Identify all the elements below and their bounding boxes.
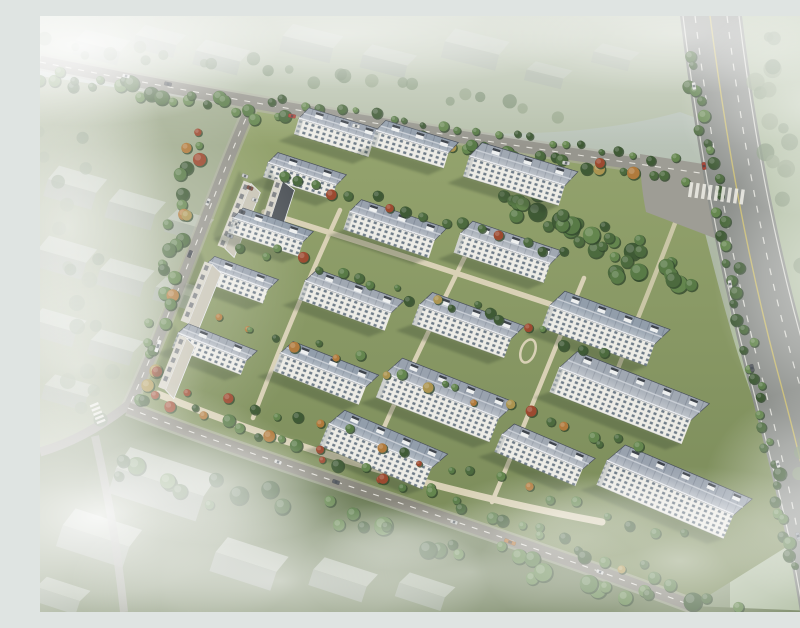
tree-highlight [557, 155, 562, 160]
tree-highlight [629, 168, 635, 174]
tree-highlight [622, 256, 628, 262]
tree-highlight [667, 274, 674, 281]
tree-highlight [427, 487, 432, 492]
tree-highlight [443, 220, 447, 224]
tree-highlight [560, 422, 564, 426]
tree-highlight [559, 341, 564, 346]
tree-highlight [525, 324, 529, 328]
tree-highlight [399, 484, 403, 488]
tree-highlight [443, 381, 446, 384]
tree-highlight [466, 467, 470, 471]
tree-highlight [650, 172, 654, 176]
tree-highlight [507, 400, 512, 405]
tree-highlight [417, 461, 420, 464]
tree-highlight [605, 234, 610, 239]
tree-highlight [601, 222, 606, 227]
tree-highlight [294, 177, 299, 182]
tree-highlight [357, 351, 362, 356]
tree-highlight [327, 190, 332, 195]
tree-highlight [401, 207, 406, 212]
tree-highlight [400, 448, 404, 452]
tree-highlight [611, 253, 616, 258]
tree-highlight [379, 444, 384, 449]
tree-highlight [527, 407, 532, 412]
tree-highlight [560, 248, 564, 252]
tree-highlight [575, 237, 580, 242]
tree-highlight [558, 210, 564, 216]
tree-highlight [511, 210, 518, 217]
tree-highlight [635, 442, 640, 447]
aerial-rendering-svg [40, 16, 800, 612]
tree-highlight [395, 285, 398, 288]
tree-highlight [339, 269, 344, 274]
tree-highlight [495, 231, 500, 236]
aerial-render-figure [40, 16, 800, 612]
tree-highlight [585, 228, 593, 236]
tree-highlight [599, 150, 602, 153]
tree-highlight [333, 355, 337, 359]
tree-highlight [497, 472, 501, 476]
tree-highlight [316, 340, 319, 343]
tree-highlight [599, 242, 604, 247]
car-glass [565, 162, 568, 165]
tree-highlight [274, 414, 278, 418]
tree-highlight [294, 413, 299, 418]
tree-highlight [647, 157, 652, 162]
tree-highlight [495, 316, 500, 321]
tree-highlight [424, 383, 429, 388]
tree-highlight [475, 302, 478, 305]
tree-highlight [367, 282, 371, 286]
tree-highlight [312, 181, 316, 185]
tree-highlight [590, 433, 595, 438]
tree-highlight [486, 309, 491, 314]
tree-highlight [660, 260, 667, 267]
tree-highlight [379, 474, 384, 479]
tree-highlight [672, 154, 676, 158]
fog-wisp [310, 501, 490, 571]
tree-highlight [712, 208, 717, 213]
tree-highlight [544, 222, 549, 227]
tree-highlight [597, 441, 600, 444]
tree-highlight [386, 205, 390, 209]
tree-highlight [615, 147, 620, 152]
tree-highlight [635, 236, 640, 241]
tree-highlight [434, 296, 438, 300]
tree-highlight [452, 384, 455, 387]
tree-highlight [458, 218, 463, 223]
tree-highlight [346, 425, 350, 429]
tree-highlight [405, 297, 410, 302]
tree-highlight [596, 159, 601, 164]
tree-highlight [547, 418, 551, 422]
tree-highlight [419, 213, 423, 217]
tree-highlight [317, 420, 321, 424]
tree-highlight [355, 274, 360, 279]
tree-highlight [620, 168, 624, 172]
tree-highlight [363, 464, 367, 468]
tree-highlight [552, 153, 557, 158]
tree-highlight [471, 400, 474, 403]
tree-highlight [660, 171, 665, 176]
tree-highlight [539, 248, 544, 253]
tree-highlight [384, 372, 388, 376]
tree-highlight [612, 271, 619, 278]
tree-highlight [632, 265, 640, 273]
tree-highlight [524, 238, 528, 242]
tree-highlight [582, 164, 588, 170]
tree-highlight [615, 435, 619, 439]
tree-highlight [536, 152, 541, 157]
tree-highlight [626, 244, 634, 252]
tree-highlight [686, 280, 692, 286]
tree-highlight [374, 192, 379, 197]
tree-highlight [682, 178, 686, 182]
tree-highlight [479, 225, 483, 229]
tree-highlight [600, 349, 605, 354]
tree-highlight [579, 346, 584, 351]
tree-highlight [344, 192, 349, 197]
tree-highlight [449, 305, 452, 308]
tree-highlight [398, 370, 403, 375]
tree-highlight [540, 326, 543, 329]
tree-highlight [630, 153, 633, 156]
tree-highlight [449, 468, 452, 471]
tree-highlight [636, 246, 642, 252]
tree-highlight [316, 267, 319, 270]
